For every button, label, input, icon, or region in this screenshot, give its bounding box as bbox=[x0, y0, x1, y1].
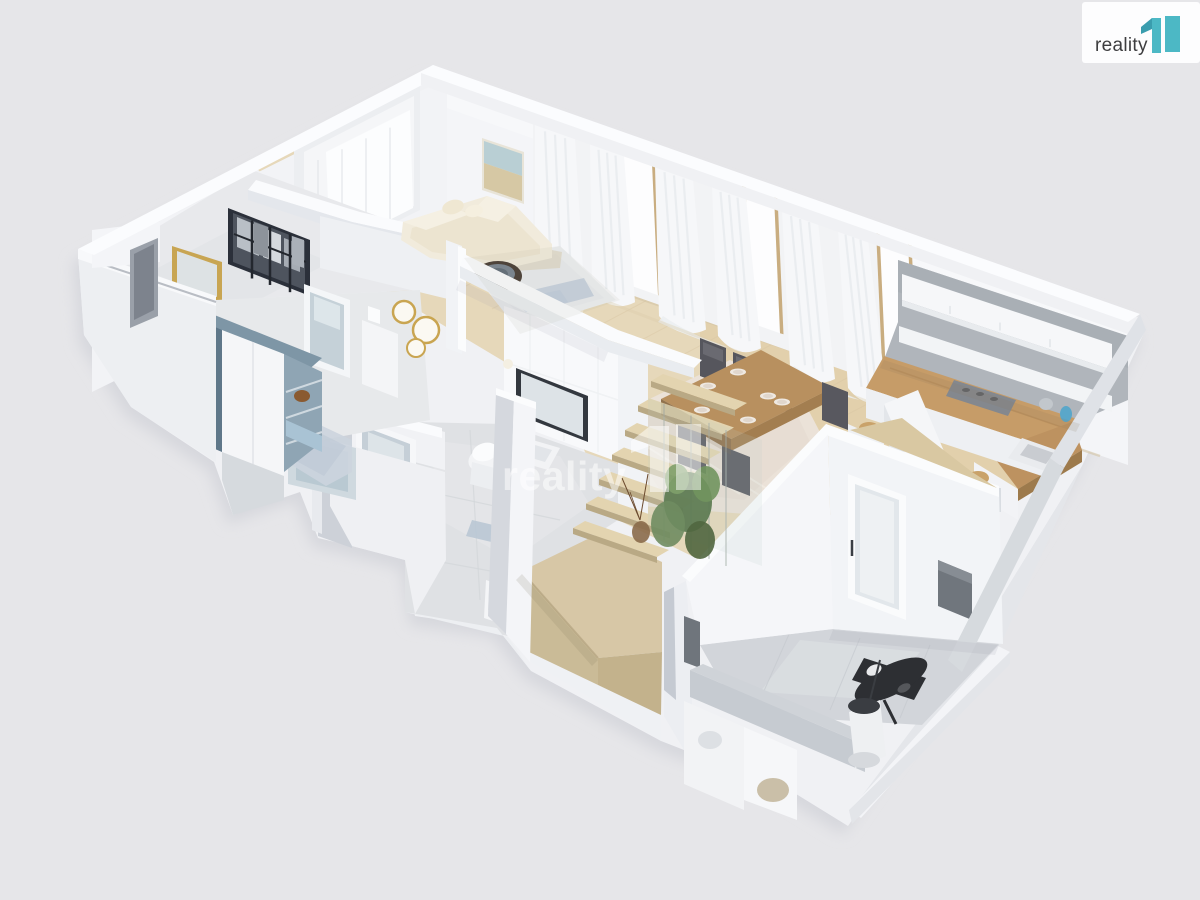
svg-text:reality: reality bbox=[502, 453, 626, 499]
svg-text:reality: reality bbox=[1095, 35, 1148, 56]
